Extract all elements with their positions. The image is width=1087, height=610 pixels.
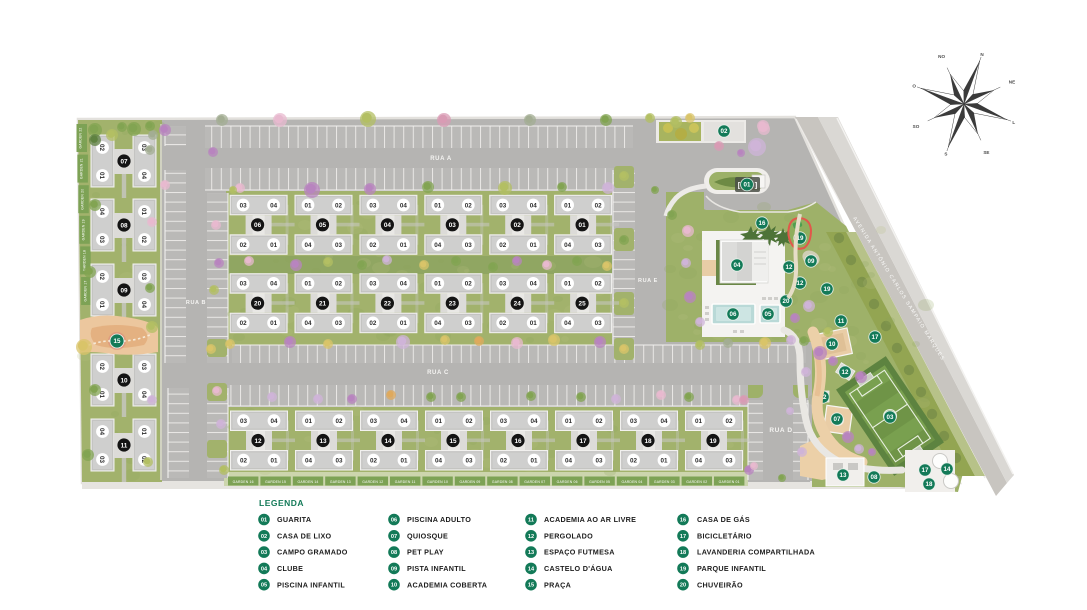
svg-text:04: 04 bbox=[434, 242, 442, 249]
svg-text:01: 01 bbox=[261, 518, 267, 524]
svg-text:12: 12 bbox=[254, 438, 262, 445]
svg-text:04: 04 bbox=[564, 320, 572, 327]
svg-text:03: 03 bbox=[465, 457, 473, 464]
svg-text:12: 12 bbox=[528, 534, 534, 540]
svg-text:PISCINA ADULTO: PISCINA ADULTO bbox=[407, 515, 471, 524]
svg-text:20: 20 bbox=[254, 301, 262, 308]
svg-text:PET PLAY: PET PLAY bbox=[407, 548, 444, 557]
svg-text:02: 02 bbox=[261, 534, 267, 540]
svg-text:03: 03 bbox=[335, 457, 343, 464]
svg-text:05: 05 bbox=[319, 222, 327, 229]
svg-text:GARDEN 07: GARDEN 07 bbox=[524, 480, 545, 484]
svg-text:04: 04 bbox=[305, 457, 313, 464]
svg-text:25: 25 bbox=[579, 301, 587, 308]
svg-text:S: S bbox=[944, 152, 947, 157]
svg-text:23: 23 bbox=[449, 301, 457, 308]
svg-text:GARDEN 12: GARDEN 12 bbox=[362, 480, 383, 484]
svg-text:01: 01 bbox=[565, 418, 573, 425]
svg-text:CASA DE GÁS: CASA DE GÁS bbox=[697, 515, 750, 524]
svg-text:10: 10 bbox=[391, 583, 397, 589]
svg-text:03: 03 bbox=[98, 456, 105, 464]
svg-text:03: 03 bbox=[595, 320, 603, 327]
svg-text:22: 22 bbox=[384, 301, 392, 308]
svg-text:GARDEN 06: GARDEN 06 bbox=[557, 480, 578, 484]
svg-text:GUARITA: GUARITA bbox=[277, 515, 311, 524]
svg-text:PRAÇA: PRAÇA bbox=[544, 580, 571, 589]
svg-text:07: 07 bbox=[120, 158, 128, 165]
svg-text:02: 02 bbox=[499, 320, 507, 327]
svg-text:RUA C: RUA C bbox=[427, 370, 449, 376]
svg-text:CHUVEIRÃO: CHUVEIRÃO bbox=[697, 580, 743, 589]
svg-text:04: 04 bbox=[98, 428, 105, 436]
svg-text:ACADEMIA COBERTA: ACADEMIA COBERTA bbox=[407, 580, 487, 589]
svg-text:01: 01 bbox=[270, 320, 278, 327]
svg-text:04: 04 bbox=[270, 418, 278, 425]
svg-text:04: 04 bbox=[695, 457, 703, 464]
svg-text:04: 04 bbox=[734, 262, 741, 269]
svg-text:ESPAÇO FUTMESA: ESPAÇO FUTMESA bbox=[544, 548, 615, 557]
svg-text:GARDEN 10: GARDEN 10 bbox=[427, 480, 448, 484]
svg-text:04: 04 bbox=[140, 391, 147, 399]
svg-text:03: 03 bbox=[140, 363, 147, 371]
svg-text:04: 04 bbox=[384, 222, 392, 229]
svg-text:PISCINA INFANTIL: PISCINA INFANTIL bbox=[277, 580, 345, 589]
svg-text:02: 02 bbox=[240, 457, 248, 464]
svg-text:SE: SE bbox=[983, 150, 989, 155]
svg-text:19: 19 bbox=[824, 286, 831, 293]
svg-text:GARDEN 17: GARDEN 17 bbox=[83, 280, 87, 301]
svg-text:03: 03 bbox=[370, 418, 378, 425]
svg-text:04: 04 bbox=[434, 320, 442, 327]
svg-text:02: 02 bbox=[595, 281, 603, 288]
svg-text:11: 11 bbox=[528, 518, 534, 524]
svg-text:02: 02 bbox=[595, 202, 603, 209]
svg-text:04: 04 bbox=[435, 457, 443, 464]
svg-text:12: 12 bbox=[786, 264, 793, 271]
svg-text:02: 02 bbox=[98, 273, 105, 281]
svg-text:GARDEN 21: GARDEN 21 bbox=[80, 158, 84, 179]
svg-text:01: 01 bbox=[400, 242, 408, 249]
svg-text:PERGOLADO: PERGOLADO bbox=[544, 531, 593, 540]
svg-text:06: 06 bbox=[391, 518, 397, 524]
svg-text:RUA B: RUA B bbox=[186, 300, 206, 306]
svg-text:02: 02 bbox=[499, 242, 507, 249]
svg-text:04: 04 bbox=[530, 202, 538, 209]
svg-text:17: 17 bbox=[922, 467, 929, 474]
svg-text:18: 18 bbox=[680, 550, 686, 556]
svg-text:01: 01 bbox=[744, 182, 751, 189]
svg-text:03: 03 bbox=[887, 414, 894, 421]
svg-text:07: 07 bbox=[834, 416, 841, 423]
svg-text:PARQUE INFANTIL: PARQUE INFANTIL bbox=[697, 564, 766, 573]
svg-text:GARDEN 09: GARDEN 09 bbox=[459, 480, 480, 484]
svg-text:RUA A: RUA A bbox=[430, 156, 452, 162]
svg-text:03: 03 bbox=[449, 222, 457, 229]
svg-text:PISTA INFANTIL: PISTA INFANTIL bbox=[407, 564, 466, 573]
svg-text:01: 01 bbox=[660, 457, 668, 464]
svg-text:01: 01 bbox=[140, 208, 147, 216]
svg-text:08: 08 bbox=[120, 222, 128, 229]
svg-text:12: 12 bbox=[842, 369, 849, 376]
svg-text:17: 17 bbox=[872, 334, 879, 341]
svg-text:CASTELO D'ÁGUA: CASTELO D'ÁGUA bbox=[544, 564, 613, 573]
svg-text:01: 01 bbox=[270, 242, 278, 249]
svg-text:01: 01 bbox=[304, 202, 312, 209]
svg-text:CAMPO GRAMADO: CAMPO GRAMADO bbox=[277, 548, 348, 557]
svg-text:01: 01 bbox=[98, 301, 105, 309]
svg-text:15: 15 bbox=[449, 438, 457, 445]
svg-text:02: 02 bbox=[721, 128, 728, 135]
svg-text:GARDEN 04: GARDEN 04 bbox=[621, 480, 642, 484]
svg-text:06: 06 bbox=[730, 311, 737, 318]
svg-text:04: 04 bbox=[660, 418, 668, 425]
svg-text:04: 04 bbox=[304, 320, 312, 327]
svg-text:19: 19 bbox=[709, 438, 717, 445]
svg-text:20: 20 bbox=[783, 298, 790, 305]
svg-text:03: 03 bbox=[140, 273, 147, 281]
svg-text:CLUBE: CLUBE bbox=[277, 564, 303, 573]
svg-text:NE: NE bbox=[1009, 79, 1015, 84]
svg-text:05: 05 bbox=[261, 583, 267, 589]
svg-text:20: 20 bbox=[680, 583, 686, 589]
svg-text:03: 03 bbox=[335, 242, 343, 249]
svg-text:04: 04 bbox=[530, 281, 538, 288]
svg-text:N: N bbox=[980, 52, 984, 57]
svg-text:01: 01 bbox=[400, 457, 408, 464]
svg-text:03: 03 bbox=[369, 281, 377, 288]
svg-text:10: 10 bbox=[120, 377, 128, 384]
svg-text:01: 01 bbox=[304, 281, 312, 288]
svg-text:BICICLETÁRIO: BICICLETÁRIO bbox=[697, 531, 752, 540]
svg-text:11: 11 bbox=[838, 318, 845, 325]
svg-text:01: 01 bbox=[564, 202, 572, 209]
svg-text:GARDEN 19: GARDEN 19 bbox=[82, 219, 86, 240]
svg-text:GARDEN 01: GARDEN 01 bbox=[719, 480, 740, 484]
svg-text:24: 24 bbox=[514, 301, 522, 308]
svg-text:03: 03 bbox=[335, 320, 343, 327]
svg-text:L: L bbox=[1012, 120, 1015, 125]
svg-text:02: 02 bbox=[335, 202, 343, 209]
svg-text:10: 10 bbox=[829, 341, 836, 348]
svg-text:03: 03 bbox=[98, 236, 105, 244]
svg-text:01: 01 bbox=[305, 418, 313, 425]
svg-text:02: 02 bbox=[140, 236, 147, 244]
svg-text:02: 02 bbox=[630, 457, 638, 464]
svg-text:07: 07 bbox=[391, 534, 397, 540]
svg-text:02: 02 bbox=[725, 418, 733, 425]
svg-text:02: 02 bbox=[514, 222, 522, 229]
svg-text:09: 09 bbox=[120, 287, 128, 294]
svg-text:04: 04 bbox=[400, 281, 408, 288]
svg-text:16: 16 bbox=[514, 438, 522, 445]
svg-text:06: 06 bbox=[254, 222, 262, 229]
svg-text:GARDEN 15: GARDEN 15 bbox=[265, 480, 286, 484]
svg-text:01: 01 bbox=[530, 242, 538, 249]
svg-text:LAVANDERIA COMPARTILHADA: LAVANDERIA COMPARTILHADA bbox=[697, 548, 815, 557]
svg-text:05: 05 bbox=[765, 311, 772, 318]
svg-text:01: 01 bbox=[400, 320, 408, 327]
svg-text:03: 03 bbox=[369, 202, 377, 209]
svg-text:14: 14 bbox=[384, 438, 392, 445]
svg-text:02: 02 bbox=[595, 418, 603, 425]
svg-text:03: 03 bbox=[261, 550, 267, 556]
svg-text:04: 04 bbox=[140, 172, 147, 180]
svg-text:GARDEN 13: GARDEN 13 bbox=[330, 480, 351, 484]
svg-text:01: 01 bbox=[564, 281, 572, 288]
svg-text:GARDEN 20: GARDEN 20 bbox=[81, 189, 85, 210]
svg-text:02: 02 bbox=[240, 320, 248, 327]
svg-text:09: 09 bbox=[391, 566, 397, 572]
svg-text:14: 14 bbox=[944, 466, 951, 473]
svg-text:04: 04 bbox=[530, 418, 538, 425]
svg-text:01: 01 bbox=[98, 172, 105, 180]
svg-text:03: 03 bbox=[595, 242, 603, 249]
svg-text:GARDEN 05: GARDEN 05 bbox=[589, 480, 610, 484]
svg-text:03: 03 bbox=[240, 418, 248, 425]
svg-text:08: 08 bbox=[391, 550, 397, 556]
svg-text:13: 13 bbox=[319, 438, 327, 445]
svg-text:03: 03 bbox=[499, 202, 507, 209]
svg-text:01: 01 bbox=[579, 222, 587, 229]
svg-text:09: 09 bbox=[808, 258, 815, 265]
svg-text:03: 03 bbox=[240, 202, 248, 209]
svg-text:GARDEN 08: GARDEN 08 bbox=[492, 480, 513, 484]
svg-text:02: 02 bbox=[369, 320, 377, 327]
svg-text:03: 03 bbox=[595, 457, 603, 464]
svg-text:02: 02 bbox=[370, 457, 378, 464]
svg-text:02: 02 bbox=[465, 202, 473, 209]
svg-text:RUA D: RUA D bbox=[769, 427, 792, 434]
svg-text:SO: SO bbox=[913, 124, 920, 129]
svg-text:03: 03 bbox=[725, 457, 733, 464]
svg-text:03: 03 bbox=[499, 281, 507, 288]
svg-text:02: 02 bbox=[98, 144, 105, 152]
svg-text:21: 21 bbox=[319, 301, 327, 308]
svg-text:02: 02 bbox=[465, 418, 473, 425]
svg-text:13: 13 bbox=[840, 472, 847, 479]
svg-text:02: 02 bbox=[500, 457, 508, 464]
svg-text:GARDEN 16: GARDEN 16 bbox=[233, 480, 254, 484]
svg-text:02: 02 bbox=[98, 363, 105, 371]
svg-text:14: 14 bbox=[528, 566, 535, 572]
svg-text:17: 17 bbox=[680, 534, 686, 540]
svg-text:03: 03 bbox=[500, 418, 508, 425]
svg-text:CASA DE LIXO: CASA DE LIXO bbox=[277, 531, 332, 540]
svg-text:08: 08 bbox=[871, 474, 878, 481]
svg-text:01: 01 bbox=[530, 457, 538, 464]
svg-text:RUA E: RUA E bbox=[638, 278, 658, 284]
svg-text:02: 02 bbox=[335, 281, 343, 288]
svg-text:03: 03 bbox=[630, 418, 638, 425]
svg-text:02: 02 bbox=[369, 242, 377, 249]
svg-text:02: 02 bbox=[240, 242, 248, 249]
svg-text:04: 04 bbox=[400, 418, 408, 425]
svg-text:16: 16 bbox=[680, 518, 686, 524]
svg-text:02: 02 bbox=[335, 418, 343, 425]
svg-text:16: 16 bbox=[759, 220, 766, 227]
svg-text:03: 03 bbox=[465, 242, 473, 249]
svg-text:01: 01 bbox=[434, 202, 442, 209]
svg-text:15: 15 bbox=[114, 338, 121, 345]
svg-text:03: 03 bbox=[465, 320, 473, 327]
svg-text:04: 04 bbox=[565, 457, 573, 464]
svg-text:QUIOSQUE: QUIOSQUE bbox=[407, 531, 448, 540]
svg-text:GARDEN 03: GARDEN 03 bbox=[654, 480, 675, 484]
svg-text:01: 01 bbox=[530, 320, 538, 327]
svg-text:03: 03 bbox=[240, 281, 248, 288]
svg-text:04: 04 bbox=[261, 566, 268, 572]
svg-text:18: 18 bbox=[644, 438, 652, 445]
svg-text:NO: NO bbox=[938, 54, 945, 59]
svg-text:GARDEN 11: GARDEN 11 bbox=[395, 480, 416, 484]
svg-text:12: 12 bbox=[797, 280, 804, 287]
svg-text:01: 01 bbox=[435, 418, 443, 425]
svg-text:LEGENDA: LEGENDA bbox=[259, 498, 304, 508]
svg-text:11: 11 bbox=[121, 442, 128, 449]
svg-text:O: O bbox=[912, 84, 916, 89]
svg-text:13: 13 bbox=[528, 550, 534, 556]
svg-text:02: 02 bbox=[465, 281, 473, 288]
svg-text:01: 01 bbox=[434, 281, 442, 288]
svg-text:04: 04 bbox=[400, 202, 408, 209]
svg-text:GARDEN 02: GARDEN 02 bbox=[686, 480, 707, 484]
svg-text:19: 19 bbox=[680, 566, 686, 572]
svg-text:GARDEN 22: GARDEN 22 bbox=[79, 127, 83, 148]
svg-text:04: 04 bbox=[140, 301, 147, 309]
svg-text:01: 01 bbox=[695, 418, 703, 425]
svg-text:17: 17 bbox=[579, 438, 587, 445]
svg-text:18: 18 bbox=[926, 481, 933, 488]
svg-text:04: 04 bbox=[564, 242, 572, 249]
svg-text:04: 04 bbox=[304, 242, 312, 249]
svg-text:ACADEMIA AO AR LIVRE: ACADEMIA AO AR LIVRE bbox=[544, 515, 636, 524]
svg-text:04: 04 bbox=[270, 202, 278, 209]
svg-text:04: 04 bbox=[270, 281, 278, 288]
svg-text:GARDEN 14: GARDEN 14 bbox=[297, 480, 318, 484]
svg-text:01: 01 bbox=[270, 457, 278, 464]
svg-text:15: 15 bbox=[528, 583, 534, 589]
svg-text:01: 01 bbox=[140, 428, 147, 436]
